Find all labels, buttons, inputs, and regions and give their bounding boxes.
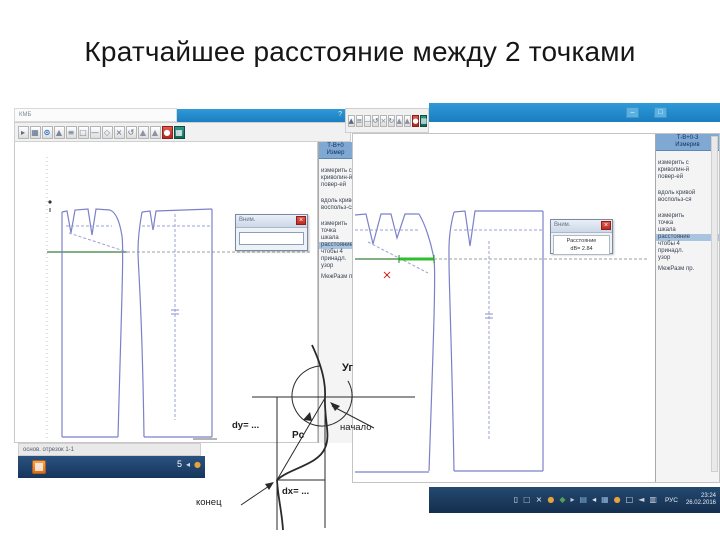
curve-diagram: Уг dy= ... Рс начало dx= ... конец	[190, 340, 420, 540]
app-icon[interactable]	[32, 460, 46, 474]
toolbar-icon[interactable]: ≡	[66, 126, 77, 139]
operator-line[interactable]: воспольз-ся	[656, 197, 719, 204]
taskbar-badge: 5	[177, 459, 182, 469]
dialog-titlebar[interactable]: Вним. ×	[236, 215, 307, 228]
operator-text-block: вдоль кривойвоспольз-ся	[656, 190, 719, 204]
toolbar-icon[interactable]: ▲	[396, 115, 403, 127]
operator-line[interactable]: принадл.	[656, 248, 719, 255]
toolbar-icon[interactable]: ↺	[372, 115, 379, 127]
toolbar-icon[interactable]: ▦	[174, 126, 185, 139]
toolbar-icon[interactable]: —	[90, 126, 101, 139]
chord-label: Рс	[292, 430, 304, 441]
measure-dialog-1[interactable]: Вним. ×	[235, 214, 308, 251]
operator-line[interactable]: криволин-й	[656, 167, 719, 174]
window1-statusbar: основ. отрезок 1-1	[18, 443, 201, 456]
operator-line[interactable]: узор	[656, 255, 719, 262]
tray-icon[interactable]: ▦	[601, 495, 609, 505]
toolbar-icon[interactable]: ▦	[420, 115, 427, 127]
result-value: dВ= 2.84	[554, 245, 609, 253]
window2-operator-panel: Т-В+0-3 Измерив измерить скриволин-йпове…	[655, 134, 719, 482]
language-indicator[interactable]: РУС	[665, 497, 678, 504]
close-icon[interactable]: ×	[296, 216, 306, 225]
toolbar-icon[interactable]: ▸	[18, 126, 29, 139]
tray-icon[interactable]: ◂	[592, 495, 596, 505]
help-icon[interactable]: ?	[338, 111, 342, 118]
toolbar-icon[interactable]: ▲	[138, 126, 149, 139]
clock-time: 23:24	[686, 493, 716, 500]
window1-taskbar: 5 ◂ ●	[18, 456, 205, 478]
close-icon[interactable]: ×	[601, 221, 611, 230]
operator-header: Т-В+0-3 Измерив	[656, 134, 719, 151]
toolbar-icon[interactable]: ◇	[102, 126, 113, 139]
operator-line[interactable]: точка	[656, 220, 719, 227]
toolbar-icon[interactable]: ×	[380, 115, 387, 127]
maximize-button[interactable]: □	[654, 107, 667, 118]
tray-icon[interactable]: □	[523, 495, 531, 505]
curve-diagram-drawing	[190, 340, 420, 540]
dialog-result: Расстояние dВ= 2.84	[553, 235, 610, 255]
operator-line[interactable]: вдоль кривой	[656, 190, 719, 197]
end-label: конец	[196, 497, 222, 508]
toolbar-icon[interactable]: ▲	[54, 126, 65, 139]
toolbar-icon[interactable]: ↻	[388, 115, 395, 127]
tray-icon[interactable]: □	[626, 495, 634, 505]
tray-icon[interactable]: ▤	[580, 495, 588, 505]
toolbar-icon[interactable]: —	[364, 115, 371, 127]
slide-title: Кратчайшее расстояние между 2 точками	[0, 36, 720, 68]
window2-toolbar: ▲ ≡ — ↺ × ↻ ▲ ▲ ● ▦	[345, 108, 429, 133]
toolbar-icon[interactable]: ●	[162, 126, 173, 139]
tray-icon[interactable]: ×	[536, 495, 543, 505]
sidebar-scrollbar[interactable]	[711, 136, 718, 472]
dialog-input[interactable]	[239, 232, 304, 245]
construction-dashed-lines-1	[66, 226, 127, 252]
toolbar-icon[interactable]: ≡	[356, 115, 363, 127]
operator-line[interactable]: измерить	[656, 213, 719, 220]
operator-line[interactable]: чтобы 4	[656, 241, 719, 248]
toolbar-icon[interactable]: ▦	[30, 126, 41, 139]
presentation-slide: Кратчайшее расстояние между 2 точками КМ…	[0, 0, 720, 540]
toolbar-icon[interactable]: ▲	[404, 115, 411, 127]
construction-dashed-lines-2	[355, 230, 428, 273]
end-arrowhead	[265, 482, 274, 490]
window1-titlebar[interactable]: ?	[177, 109, 351, 122]
minimize-button[interactable]: –	[626, 107, 639, 118]
selected-point-marker	[384, 272, 390, 278]
taskbar-clock[interactable]: 23:24 26.02.2016	[686, 493, 716, 507]
operator-text-block: чтобы 4принадл.узор	[656, 241, 719, 262]
start-label: начало	[340, 422, 372, 433]
tray-icon[interactable]: ●	[547, 495, 554, 505]
window2-titlebar[interactable]: – □	[429, 103, 720, 122]
toolbar-icon[interactable]: ▲	[150, 126, 161, 139]
hip-line-2	[355, 255, 649, 263]
dy-label: dy= ...	[232, 420, 259, 431]
tray-icon[interactable]: ▸	[571, 495, 575, 505]
operator-text-block: измеритьточкашкала	[656, 213, 719, 234]
toolbar-icon[interactable]: ⊙	[42, 126, 53, 139]
grain-line-2	[454, 230, 543, 441]
angle-arrowhead	[303, 412, 312, 421]
window1-menu[interactable]: КМБ	[14, 108, 177, 122]
measure-dialog-2[interactable]: Вним. × Расстояние dВ= 2.84	[550, 219, 613, 254]
toolbar-icon[interactable]: ×	[114, 126, 125, 139]
tray-icon[interactable]: ▥	[649, 495, 657, 505]
window2-taskbar: ▯ □ × ● ◆ ▸ ▤ ◂ ▦ ●	[429, 487, 720, 513]
window1-toolbar: ▸ ▦ ⊙ ▲ ≡ □ — ◇ × ↺ ▲ ▲	[14, 122, 351, 142]
tray-icon[interactable]: ▯	[514, 495, 518, 505]
clock-date: 26.02.2016	[686, 500, 716, 507]
tray-icon[interactable]: ◄	[638, 495, 644, 505]
toolbar-icon[interactable]: ↺	[126, 126, 137, 139]
operator-footer[interactable]: МежРазм пр.	[656, 266, 719, 272]
result-label: Расстояние	[554, 237, 609, 245]
operator-text-block: измерить скриволин-йповер-ей	[656, 160, 719, 181]
tray-icon[interactable]: ●	[614, 495, 621, 505]
dx-label: dx= ...	[282, 486, 309, 497]
system-tray: ▯ □ × ● ◆ ▸ ▤ ◂ ▦ ●	[514, 495, 657, 505]
point-marker	[48, 200, 51, 203]
operator-line[interactable]: измерить с	[656, 160, 719, 167]
operator-line[interactable]: шкала	[656, 227, 719, 234]
tray-icon[interactable]: ◆	[559, 495, 565, 505]
skirt-front-pattern	[62, 209, 123, 437]
toolbar-icon[interactable]: □	[78, 126, 89, 139]
operator-line-selected[interactable]: расстояние	[656, 234, 719, 241]
toolbar-icon[interactable]: ▲	[348, 115, 355, 127]
toolbar-icon[interactable]: ●	[412, 115, 419, 127]
skirt-back-pattern-2	[449, 211, 543, 471]
operator-line[interactable]: повер-ей	[656, 174, 719, 181]
dialog-titlebar[interactable]: Вним. ×	[551, 220, 612, 233]
angle-label: Уг	[342, 362, 353, 374]
